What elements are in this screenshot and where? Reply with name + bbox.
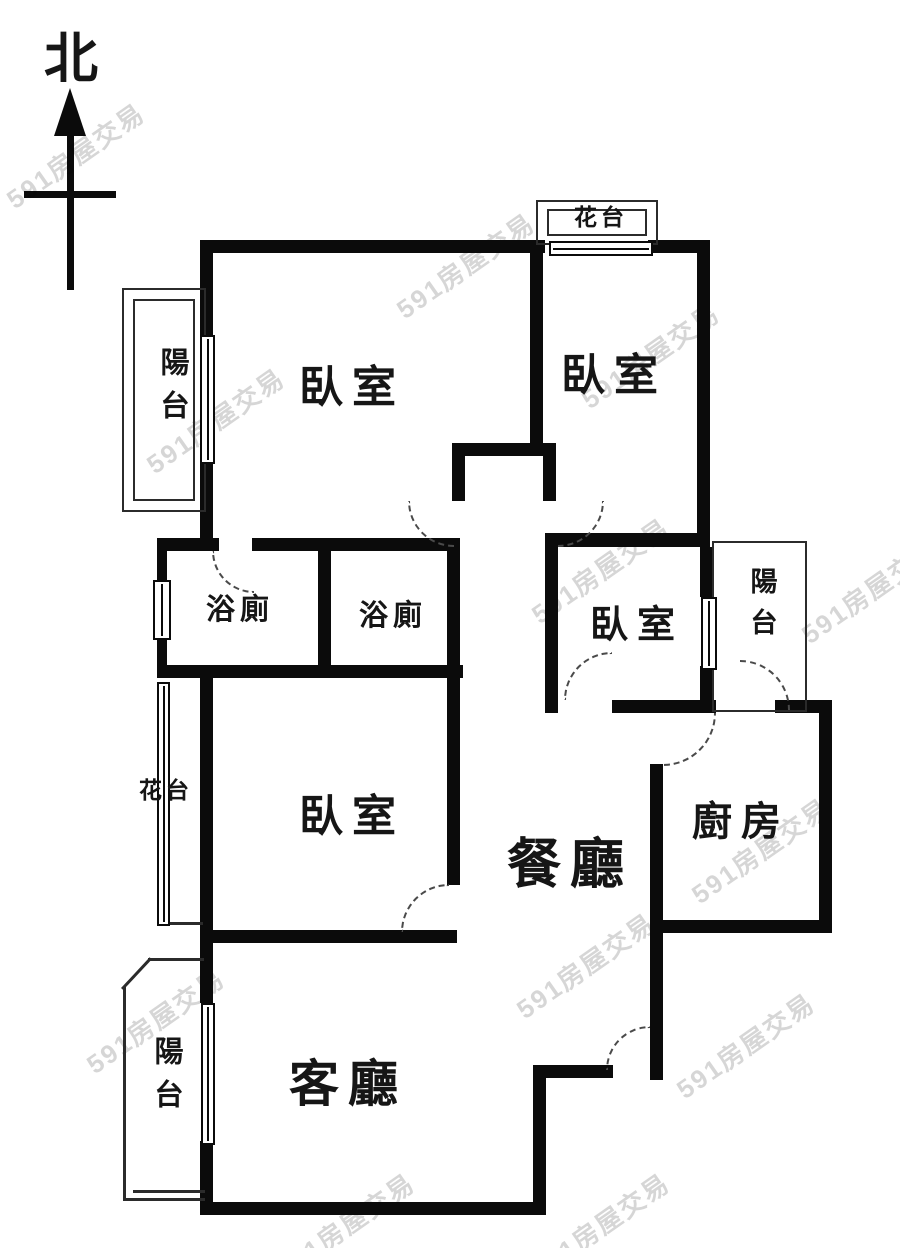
wall-segment [200,240,545,253]
wall-segment [697,240,710,540]
window [200,335,215,464]
room-label-bedroom-ne: 臥室 [561,339,667,403]
wall-segment [650,920,832,933]
door-arc-kitchen [663,713,716,766]
room-label-balcony-sw: 陽台 [145,1036,187,1122]
balcony-sw-outline-corner [121,957,152,990]
room-label-flower-north: 花台 [574,198,628,232]
wall-segment [200,1141,213,1215]
wall-segment [533,1065,546,1215]
north-label: 北 [44,14,98,93]
room-label-bedroom-nw: 臥室 [299,351,405,415]
wall-segment [530,253,543,448]
balcony-sw-outline-left [123,986,126,1201]
room-label-bedroom-sw: 臥室 [299,780,405,844]
window [201,1003,215,1145]
wall-segment [650,764,663,920]
watermark: 591房屋交易 [523,1164,676,1248]
wall-segment [200,678,213,930]
room-label-dining: 餐廳 [507,820,633,899]
room-label-bath-1: 浴廁 [206,586,274,628]
floor-plan: 北 591房屋交易 591房屋交易 591房屋交易 591房屋交易 591房屋交… [0,0,900,1248]
room-label-living: 客廳 [289,1044,407,1116]
watermark: 591房屋交易 [388,204,541,327]
wall-segment [157,538,167,580]
balcony-sw-outline-bottom-inner [133,1190,205,1193]
watermark: 591房屋交易 [793,529,900,652]
wall-segment [819,700,832,933]
wall-segment [545,1065,613,1078]
window [549,241,653,256]
wall-segment [452,443,465,501]
door-arc-entry [606,1026,650,1070]
wall-segment [318,551,331,678]
room-label-balcony-e: 陽台 [743,567,782,649]
room-label-kitchen: 廚房 [692,789,790,847]
wall-segment [650,920,663,1080]
wall-segment [452,443,556,456]
wall-segment [447,551,460,678]
watermark: 591房屋交易 [668,984,821,1107]
watermark: 591房屋交易 [508,904,661,1027]
wall-segment [157,665,463,678]
wall-segment [543,443,556,501]
room-label-bath-2: 浴廁 [359,592,427,634]
balcony-sw-outline-bottom [123,1198,205,1201]
balcony-sw-outline-top [148,958,204,961]
room-label-flower-west: 花台 [139,771,193,805]
room-label-bedroom-e: 臥室 [590,594,684,649]
door-arc-bedroom-sw [401,884,449,932]
window [701,597,717,670]
wall-segment [447,678,460,885]
wall-segment [200,1202,546,1215]
door-arc-bedroom-e [564,652,612,700]
wall-segment [545,547,558,713]
room-label-balcony-nw: 陽台 [151,347,193,433]
window [153,580,171,640]
